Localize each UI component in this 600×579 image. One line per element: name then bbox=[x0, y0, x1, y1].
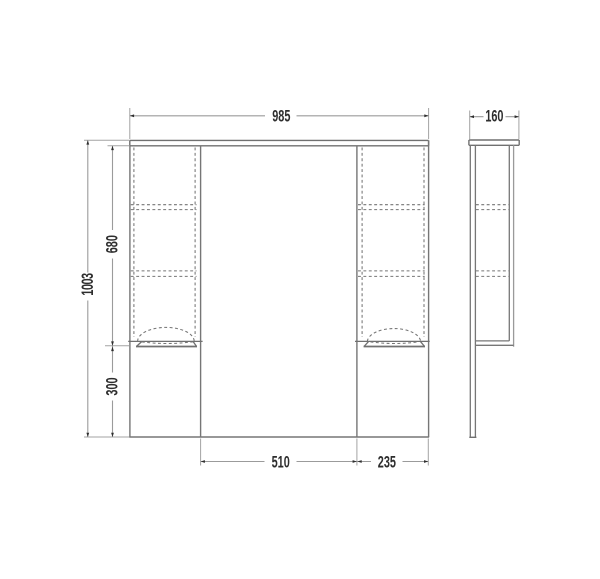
svg-text:680: 680 bbox=[103, 235, 122, 253]
svg-text:510: 510 bbox=[272, 453, 290, 472]
svg-text:985: 985 bbox=[272, 107, 290, 126]
svg-text:160: 160 bbox=[485, 107, 503, 126]
svg-text:1003: 1003 bbox=[79, 273, 98, 296]
svg-text:300: 300 bbox=[103, 377, 122, 395]
svg-text:235: 235 bbox=[378, 453, 396, 472]
